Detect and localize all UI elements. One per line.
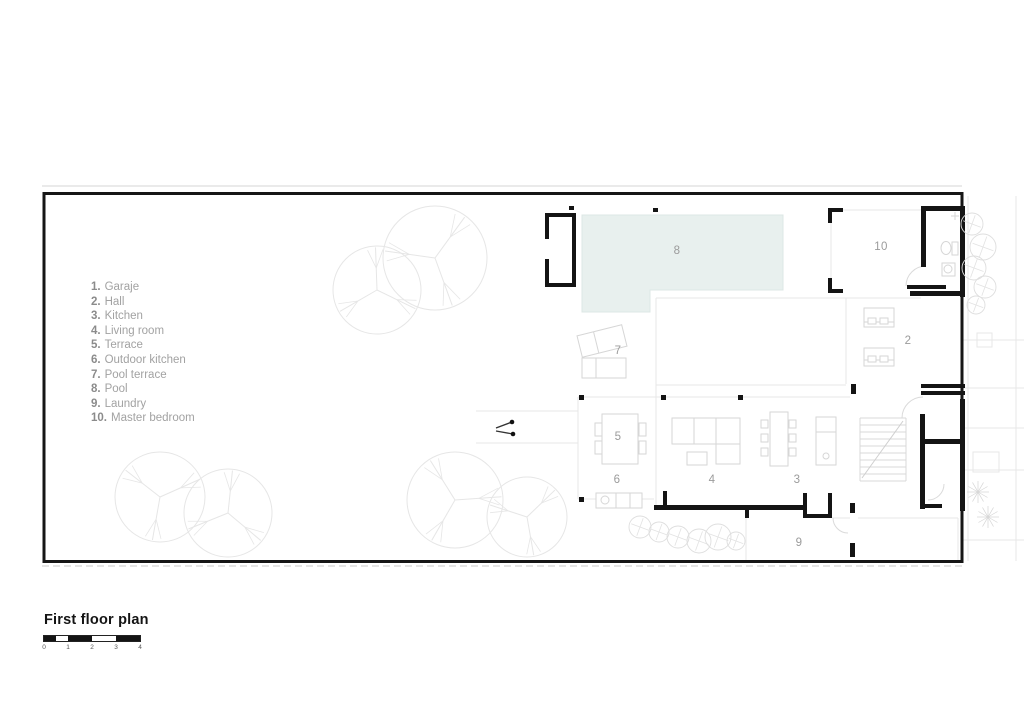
scale-tick: 3: [114, 644, 118, 651]
room-label-kitchen: 3: [794, 474, 801, 486]
legend-item: 8.Pool: [91, 382, 195, 397]
legend-item: 4.Living room: [91, 324, 195, 339]
legend-item: 3.Kitchen: [91, 309, 195, 324]
scale-tick: 0: [42, 644, 46, 651]
room-label-pool: 8: [674, 245, 681, 257]
vegetation-layer: [115, 206, 999, 557]
title-block: First floor plan 0 1 2 3 4: [44, 612, 149, 652]
room-label-laundry: 9: [796, 537, 803, 549]
door-arcs: [833, 266, 944, 533]
legend-item: 10.Master bedroom: [91, 411, 195, 426]
scale-tick: 2: [90, 644, 94, 651]
scale-tick: 1: [66, 644, 70, 651]
legend-item: 9.Laundry: [91, 397, 195, 412]
room-label-pool-terrace: 7: [615, 345, 622, 357]
pool-area: [582, 215, 783, 312]
legend: 1.Garaje 2.Hall 3.Kitchen 4.Living room …: [91, 280, 195, 426]
gate-symbol: [496, 420, 515, 437]
floor-plan-sheet: 1.Garaje 2.Hall 3.Kitchen 4.Living room …: [0, 0, 1024, 714]
scale-tick: 4: [138, 644, 142, 651]
legend-item: 1.Garaje: [91, 280, 195, 295]
room-label-living-room: 4: [709, 474, 716, 486]
legend-item: 6.Outdoor kitchen: [91, 353, 195, 368]
legend-item: 2.Hall: [91, 295, 195, 310]
room-label-hall: 2: [905, 335, 912, 347]
plan-title: First floor plan: [44, 612, 149, 628]
room-label-terrace: 5: [615, 431, 622, 443]
room-label-master-bedroom: 10: [874, 241, 887, 253]
room-label-outdoor-kitchen: 6: [614, 474, 621, 486]
scale-bar: 0 1 2 3 4: [44, 636, 142, 652]
legend-item: 5.Terrace: [91, 338, 195, 353]
scale-bar-track: [44, 636, 140, 641]
stairs: [860, 418, 906, 481]
legend-item: 7.Pool terrace: [91, 368, 195, 383]
